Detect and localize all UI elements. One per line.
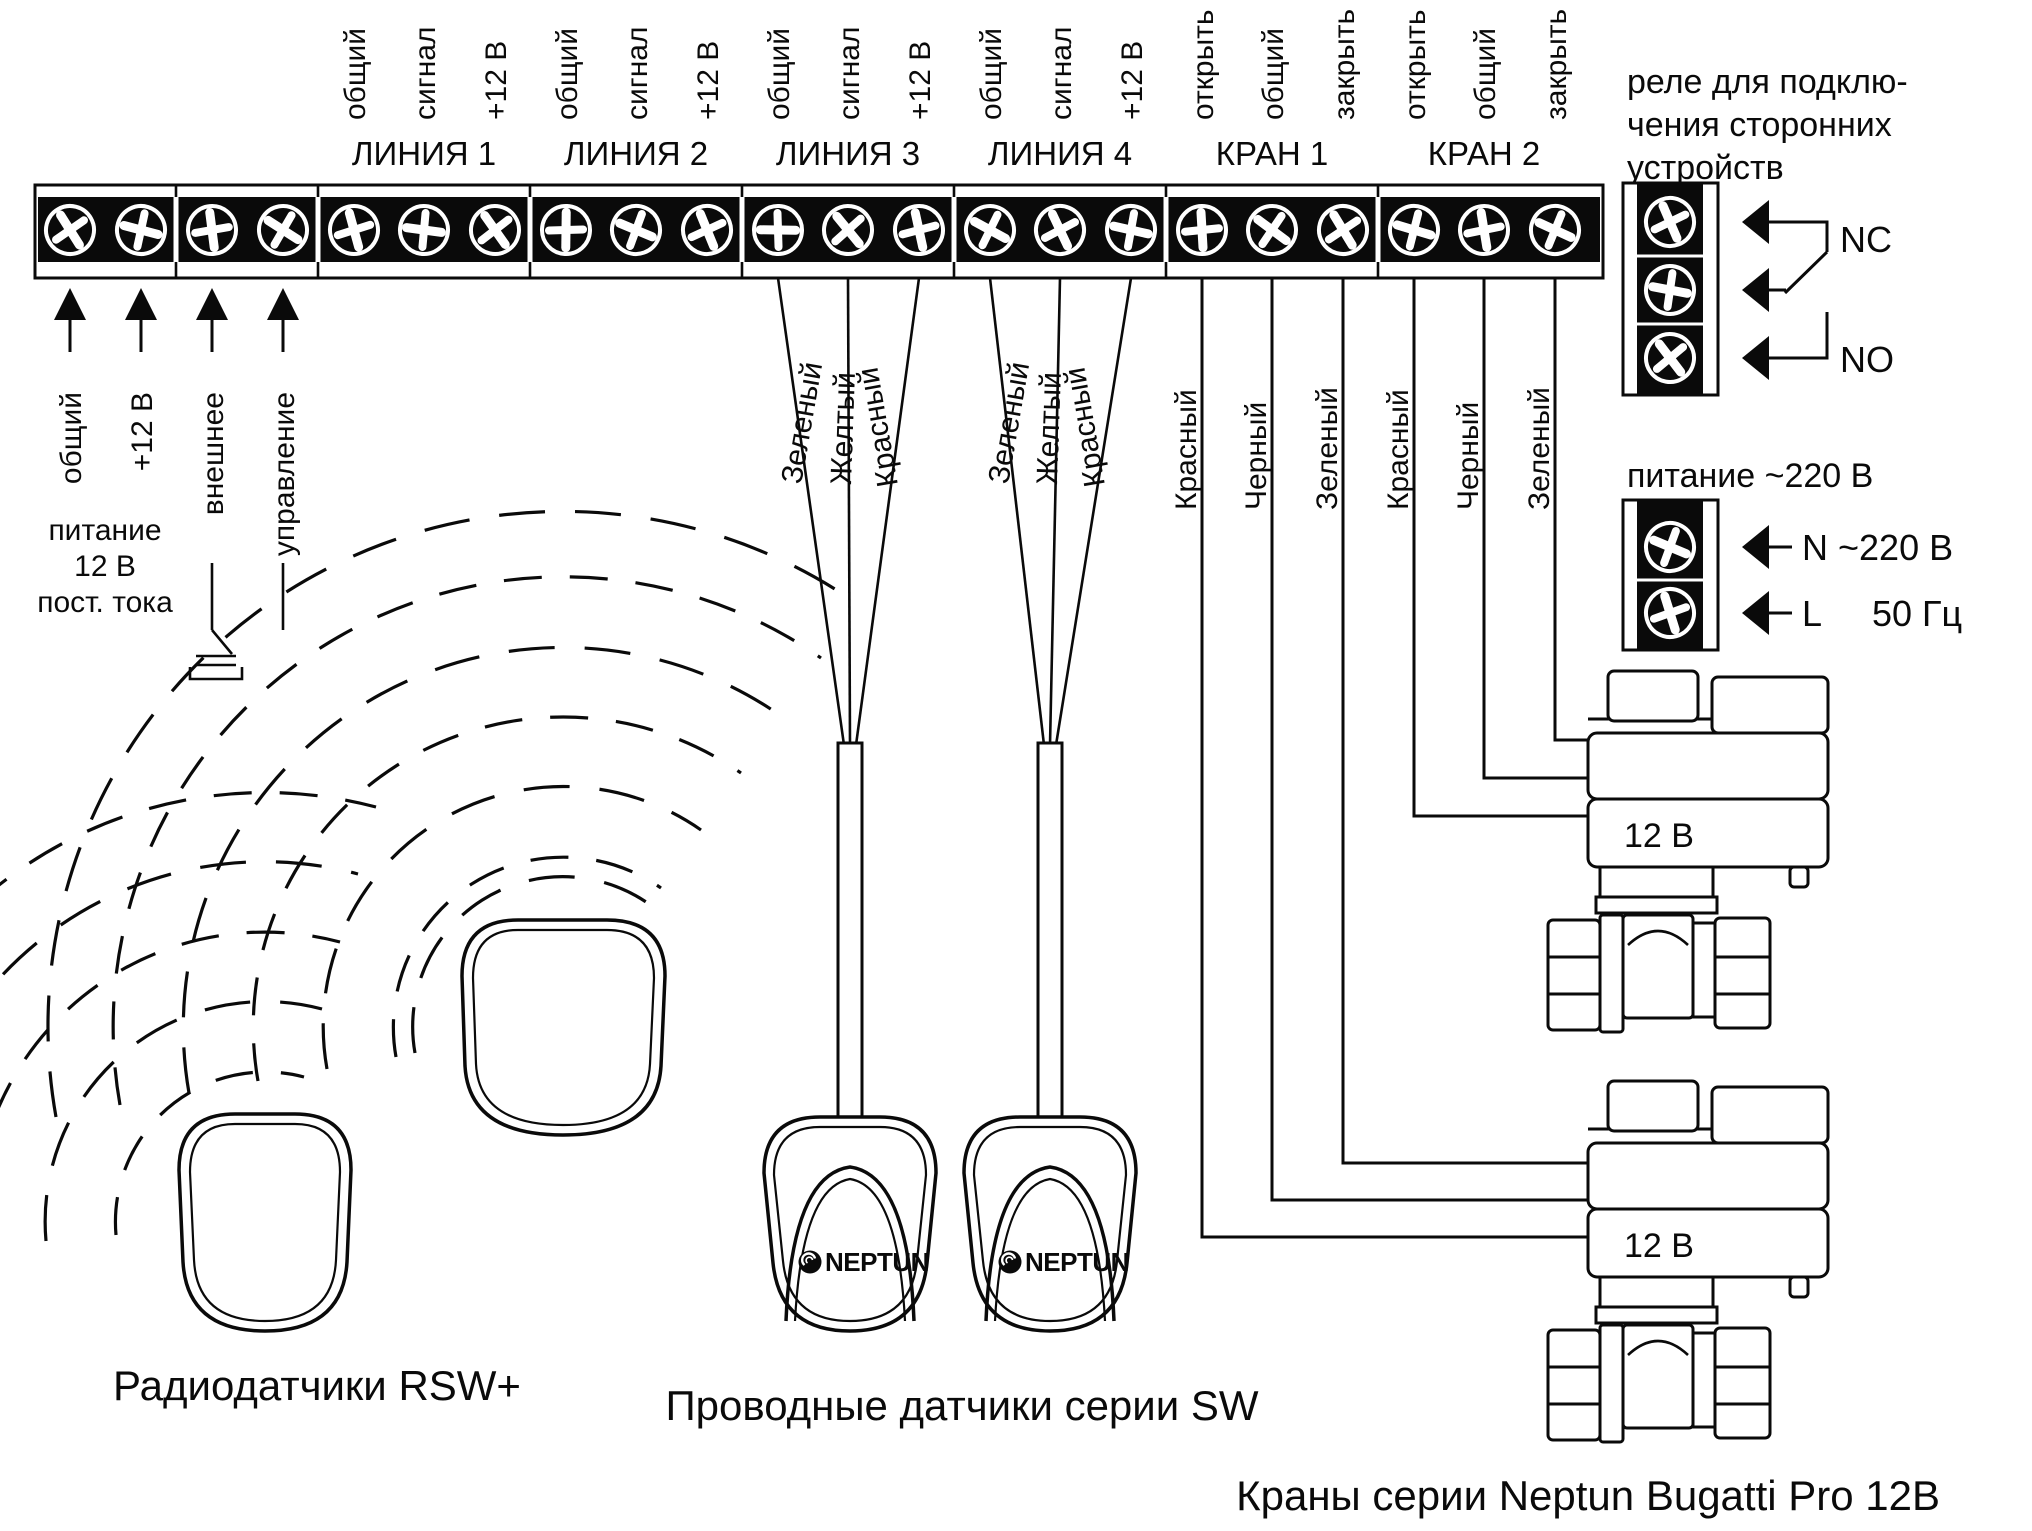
top-pin-labels: общий сигнал +12 В общий сигнал +12 В об…	[339, 9, 1573, 120]
group-label: ЛИНИЯ 1	[352, 135, 496, 172]
pin-label: +12 В	[692, 41, 725, 120]
sensor-cable-1	[838, 743, 862, 1119]
radio-sensor-b	[462, 920, 665, 1135]
sensor3-wire-labels: Зеленый Желтый Красный	[775, 359, 904, 489]
pin-label: +12 В	[126, 392, 159, 471]
input-arrows	[54, 288, 299, 352]
pin-label: сигнал	[621, 27, 654, 120]
group-label: ЛИНИЯ 3	[776, 135, 920, 172]
sensor-fan-wires	[778, 278, 1131, 745]
group-name-labels: ЛИНИЯ 1 ЛИНИЯ 2 ЛИНИЯ 3 ЛИНИЯ 4 КРАН 1 К…	[352, 135, 1540, 172]
svg-text:питание: питание	[48, 514, 161, 547]
svg-text:реле для подклю-: реле для подклю-	[1627, 63, 1908, 101]
valve1-wire-labels: Красный Черный Зеленый	[1170, 387, 1344, 510]
terminal-strip	[35, 185, 1603, 278]
group-label: КРАН 1	[1216, 135, 1328, 172]
svg-text:Красный: Красный	[1382, 389, 1415, 510]
group-label: ЛИНИЯ 2	[564, 135, 708, 172]
radio-sensors-caption: Радиодатчики RSW+	[113, 1362, 521, 1409]
wired-sensor-1	[764, 1117, 936, 1331]
external-switch-symbol	[190, 563, 283, 679]
l-label: L	[1802, 593, 1822, 634]
wiring-diagram: 12 В NEPTUN	[0, 0, 2032, 1531]
svg-text:Красный: Красный	[1058, 365, 1111, 490]
pin-label: +12 В	[904, 41, 937, 120]
svg-text:Черный: Черный	[1452, 402, 1485, 510]
relay-contact-diagram: NC NO	[1742, 200, 1894, 380]
pin-label: сигнал	[1045, 27, 1078, 120]
pin-label: общий	[763, 28, 796, 120]
svg-text:устройств: устройств	[1627, 149, 1784, 187]
pin-label: закрыть	[1328, 9, 1361, 120]
pin-label: общий	[1469, 28, 1502, 120]
valve2-wire-labels: Красный Черный Зеленый	[1382, 387, 1556, 510]
wired-sensor-2	[964, 1117, 1136, 1331]
group-label: КРАН 2	[1428, 135, 1540, 172]
pin-label: +12 В	[1116, 41, 1149, 120]
svg-text:Зеленый: Зеленый	[775, 359, 829, 486]
valve-2	[1548, 1081, 1828, 1442]
valves-caption: Краны серии Neptun Bugatti Pro 12В	[1236, 1472, 1940, 1519]
wired-sensors-caption: Проводные датчики серии SW	[665, 1382, 1258, 1429]
pin-label: +12 В	[480, 41, 513, 120]
pin-label: внешнее	[197, 392, 230, 515]
group-label: ЛИНИЯ 4	[988, 135, 1132, 172]
pin-label: сигнал	[409, 27, 442, 120]
wiring-diagram-page: 12 В NEPTUN	[0, 0, 2032, 1531]
nc-label: NC	[1840, 219, 1892, 260]
no-label: NO	[1840, 339, 1894, 380]
svg-text:Зеленый: Зеленый	[1523, 387, 1556, 510]
svg-text:Зеленый: Зеленый	[1311, 387, 1344, 510]
pin-label: сигнал	[833, 27, 866, 120]
svg-text:12 В: 12 В	[74, 550, 136, 583]
power220-arrows: N ~220 В L 50 Гц	[1742, 525, 1962, 635]
pin-label: общий	[551, 28, 584, 120]
pin-label: общий	[55, 392, 88, 484]
power-caption: питание 12 В пост. тока	[37, 514, 173, 619]
pin-label: закрыть	[1540, 9, 1573, 120]
valve-1	[1548, 671, 1828, 1032]
sensor4-wire-labels: Зеленый Желтый Красный	[982, 359, 1111, 489]
power220-title: питание ~220 В	[1627, 457, 1873, 495]
svg-text:Красный: Красный	[1170, 389, 1203, 510]
radio-sensor-a	[179, 1114, 351, 1331]
svg-text:пост. тока: пост. тока	[37, 586, 173, 619]
pin-label: открыть	[1399, 9, 1432, 120]
sensor-cable-2	[1038, 743, 1062, 1119]
relay-terminal-block	[1623, 183, 1718, 395]
pin-label: открыть	[1187, 9, 1220, 120]
pin-label: общий	[975, 28, 1008, 120]
pin-label: общий	[339, 28, 372, 120]
relay-caption: реле для подклю- чения сторонних устройс…	[1627, 63, 1908, 187]
svg-text:Черный: Черный	[1240, 402, 1273, 510]
pin-label: управление	[268, 392, 301, 556]
power220-terminal-block	[1623, 500, 1718, 650]
n-label: N ~220 В	[1802, 527, 1953, 568]
svg-text:Зеленый: Зеленый	[982, 359, 1036, 486]
svg-text:чения сторонних: чения сторонних	[1627, 106, 1892, 144]
pin-label: общий	[1257, 28, 1290, 120]
hz-label: 50 Гц	[1872, 593, 1962, 634]
